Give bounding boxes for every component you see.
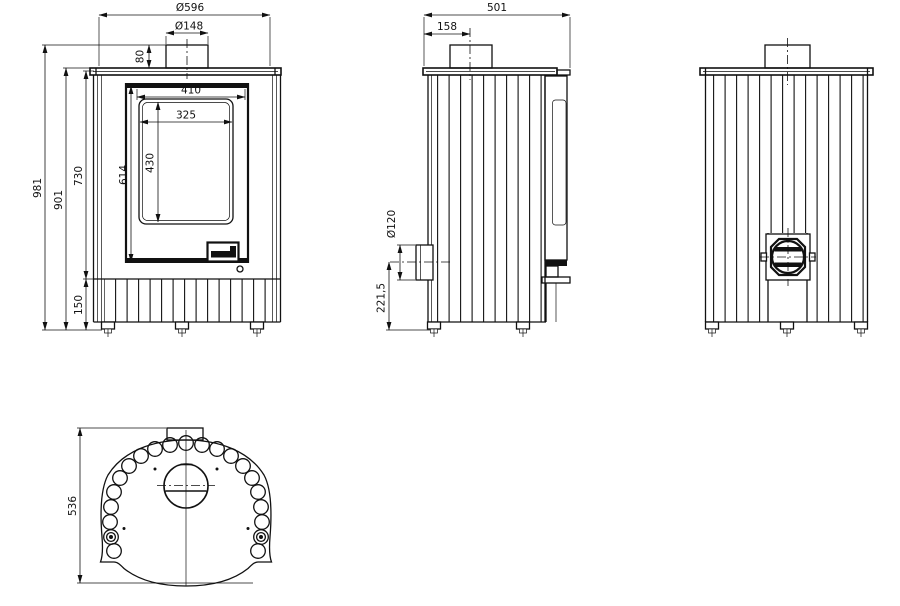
dim-label-glass-width: 325 [176, 110, 196, 122]
dim-label-air-inlet-diameter: Ø120 [386, 210, 398, 238]
dim-label-overall-height: 981 [32, 178, 44, 198]
door-side-profile [542, 76, 570, 322]
foot [428, 322, 441, 337]
dim-glass-height: 430 [145, 102, 159, 222]
side-view: 501 158 Ø120 221,5 [376, 2, 571, 337]
stove-body-back [706, 75, 868, 322]
dim-label-top-plate-depth: 536 [67, 496, 79, 516]
back-ribs-left [707, 233, 768, 322]
bolt [109, 535, 113, 539]
base-plinth [94, 279, 281, 322]
dim-glass-width: 325 [140, 110, 232, 123]
flue-collar-side [450, 45, 492, 68]
dim-label-base-height: 150 [73, 295, 85, 315]
foot [517, 322, 530, 337]
foot [855, 322, 868, 337]
dim-flue-diameter: Ø148 [166, 21, 208, 34]
dim-label-door-height: 614 [118, 165, 130, 185]
pin-mark [123, 527, 126, 530]
dim-base-height: 150 [73, 279, 86, 330]
dim-label-glass-height: 430 [145, 153, 157, 173]
foot [781, 322, 794, 337]
back-ribs-right [807, 233, 867, 322]
latch-knob [237, 266, 243, 272]
foot [251, 322, 264, 337]
pin-mark [154, 468, 157, 471]
drawing-canvas: Ø596 Ø148 80 981 901 730 150 614 [0, 0, 900, 606]
dim-flue-center-from-back: 158 [424, 21, 470, 34]
air-inlet-damper [760, 228, 816, 286]
pin-mark [216, 468, 219, 471]
dim-air-inlet-center-height: 221,5 [376, 262, 390, 330]
pin-mark [247, 527, 250, 530]
bolt [259, 535, 263, 539]
dim-label-top-plate-height: 901 [53, 190, 65, 210]
back-ribs-upper [707, 75, 867, 233]
base-ribs [104, 280, 267, 322]
dim-label-air-inlet-center-height: 221,5 [376, 283, 388, 313]
foot [102, 322, 115, 337]
dim-top-plate-height: 901 [53, 68, 66, 330]
dim-label-flue-center-from-back: 158 [437, 21, 457, 33]
back-view [700, 38, 873, 337]
dim-upper-body-height: 730 [73, 71, 86, 279]
door-handle [208, 243, 239, 262]
dim-door-height: 614 [118, 86, 131, 262]
dim-top-plate-depth: 536 [67, 428, 80, 583]
dim-label-body-diameter: Ø596 [176, 2, 205, 14]
dim-flue-collar-height: 80 [135, 45, 150, 68]
foot [706, 322, 719, 337]
top-plate [90, 68, 281, 75]
dim-label-flue-collar-height: 80 [135, 50, 147, 63]
top-view: 536 [67, 428, 272, 586]
top-plate-back [700, 68, 873, 75]
technical-drawing-page: Ø596 Ø148 80 981 901 730 150 614 [0, 0, 900, 606]
stove-body-side [428, 75, 546, 322]
dim-overall-height: 981 [32, 45, 45, 330]
foot [176, 322, 189, 337]
dim-label-overall-depth: 501 [487, 2, 507, 14]
dim-label-flue-diameter: Ø148 [175, 21, 203, 33]
dim-overall-depth: 501 [424, 2, 570, 15]
dim-label-door-width: 410 [181, 85, 201, 97]
dim-body-diameter: Ø596 [99, 2, 270, 15]
side-body-ribs [433, 75, 543, 322]
dim-label-upper-body-height: 730 [73, 166, 85, 186]
front-view: Ø596 Ø148 80 981 901 730 150 614 [32, 2, 281, 337]
top-plate-side [423, 68, 570, 75]
